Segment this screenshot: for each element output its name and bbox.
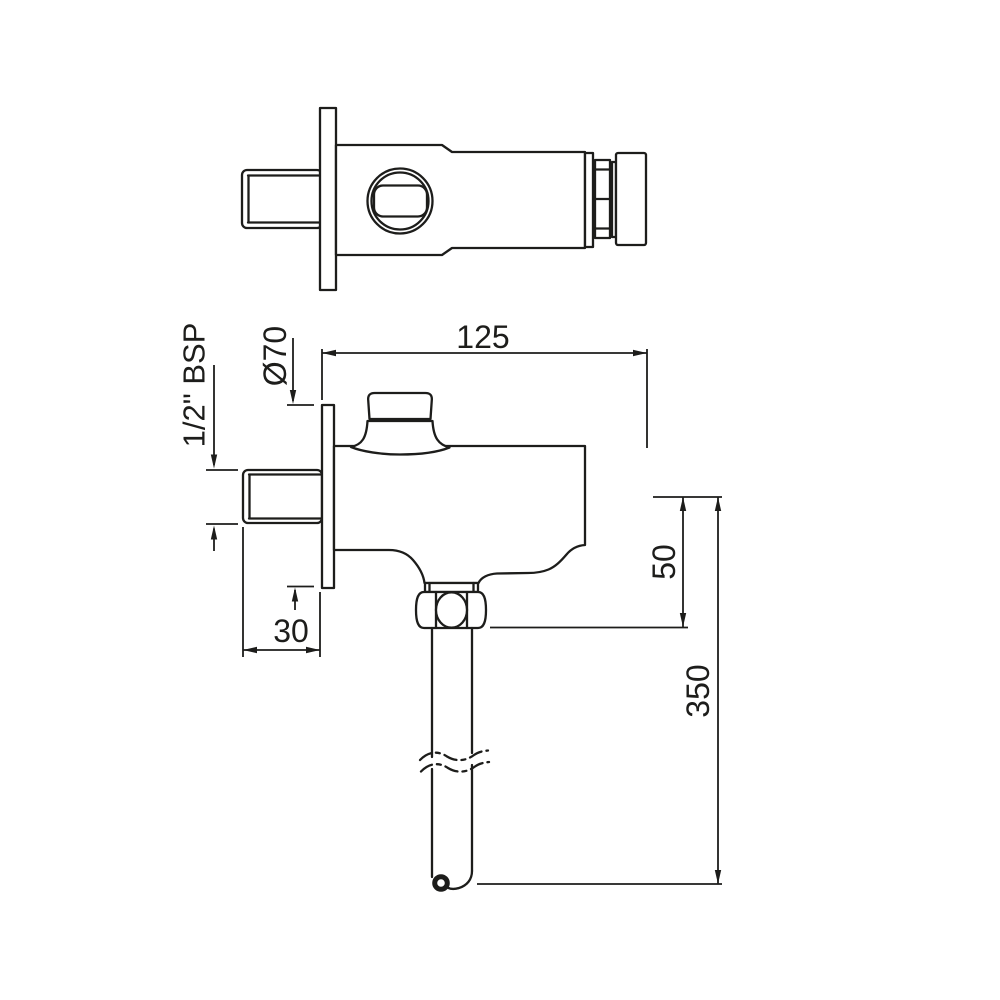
dim-350-label: 350 — [680, 664, 716, 717]
dim-o70-arrow-down — [290, 390, 296, 404]
dim-bsp-arrow-down — [211, 455, 217, 469]
dim-50-arrow-down — [680, 613, 686, 627]
valve-body-front — [334, 446, 585, 583]
dim-125-arrow-left — [322, 350, 336, 356]
dim-bsp-label: 1/2" BSP — [177, 323, 212, 448]
tailpipe-outlet-opening — [435, 877, 448, 890]
bonnet-bell — [351, 421, 450, 455]
top-view — [242, 108, 646, 290]
dim-125-label: 125 — [456, 319, 509, 355]
inlet-pipe-front — [243, 470, 322, 523]
dim-30-arrow-left — [243, 647, 257, 653]
dim-bsp-arrow-up — [211, 526, 217, 540]
dim-350-arrow-up — [715, 497, 721, 511]
dim-125-arrow-right — [633, 350, 647, 356]
button-ring-top — [585, 153, 593, 247]
dim-o70-label: Ø70 — [257, 326, 293, 386]
technical-drawing-canvas: 125 Ø70 1/2" BSP 30 50 350 — [0, 0, 1000, 1000]
dim-30-label: 30 — [273, 613, 309, 649]
wall-flange-top — [320, 108, 336, 290]
dim-50-arrow-up — [680, 497, 686, 511]
bonnet-cap — [368, 393, 432, 419]
tailpipe-end-curve — [448, 871, 473, 889]
push-button-cap-top — [616, 153, 646, 245]
spout-opening-slot — [374, 186, 427, 217]
wall-flange-front — [322, 405, 334, 588]
tailpipe-upper — [432, 628, 472, 757]
dim-50-label: 50 — [646, 544, 682, 580]
valve-drawing: 125 Ø70 1/2" BSP 30 50 350 — [0, 0, 1000, 1000]
dim-o70-arrow-up — [292, 588, 298, 602]
outlet-washer — [425, 583, 478, 592]
inlet-pipe-top — [242, 170, 322, 228]
tailpipe-lower — [432, 765, 472, 877]
dim-350-arrow-down — [715, 870, 721, 884]
outlet-nut-center-facet — [436, 592, 467, 627]
pipe-break-line-upper — [420, 751, 488, 761]
